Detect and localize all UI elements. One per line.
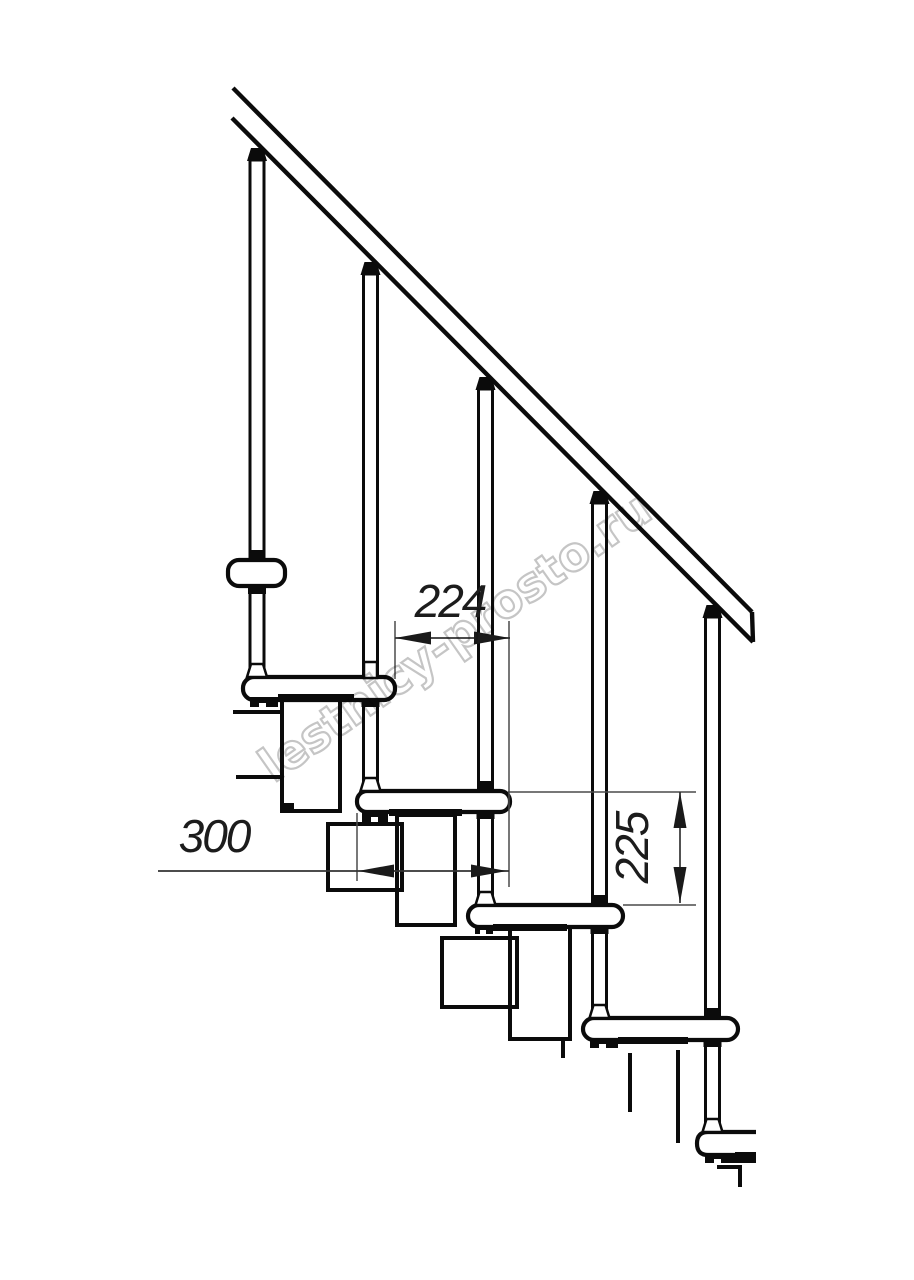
base-collar: [590, 1005, 610, 1018]
tread-shadow: [618, 1037, 688, 1044]
arrow-down: [674, 867, 687, 903]
module-joint-tick: [281, 803, 294, 812]
handrail-end-cut: [752, 612, 753, 642]
base-collar: [361, 778, 381, 791]
arrow-left: [358, 865, 394, 878]
tread-4: [583, 1018, 738, 1040]
tread-shadows: [278, 694, 756, 1163]
base-collar: [247, 664, 267, 677]
bracket-notch: [480, 930, 486, 934]
baluster-5: [706, 617, 720, 1132]
tread-2: [357, 791, 510, 812]
staircase-drawing: 224 300 225 lestnicy-prosto.ru: [0, 0, 914, 1280]
dim-label-225: 225: [606, 810, 658, 884]
tread-5-partial: [697, 1132, 756, 1155]
pass-nub: [477, 813, 495, 819]
tread-top-partial: [228, 560, 285, 586]
arrow-up: [674, 792, 687, 828]
bracket-notch: [599, 1044, 606, 1048]
module-block-offset: [442, 938, 517, 1007]
pass-nub: [591, 928, 609, 934]
pass-collar: [248, 550, 266, 560]
bracket-notch: [714, 1159, 721, 1163]
pass-nub: [248, 588, 266, 594]
base-collar: [476, 892, 496, 905]
tread-3: [468, 905, 623, 927]
pass-collar: [704, 1008, 722, 1018]
module-block-offset: [328, 824, 402, 890]
base-collar: [703, 1119, 723, 1132]
baluster-4: [593, 503, 607, 1018]
baluster-1: [250, 160, 264, 677]
tread-shadow: [735, 1152, 756, 1163]
pass-collar: [477, 781, 495, 791]
drawing-canvas: 224 300 225 lestnicy-prosto.ru: [0, 0, 914, 1280]
dim-label-300: 300: [179, 810, 252, 862]
bracket-notch: [259, 703, 266, 707]
module-block: [397, 815, 455, 925]
pass-nub: [704, 1041, 722, 1047]
tread-shadow: [493, 924, 567, 931]
module-step-cut: [717, 1167, 740, 1187]
tread-shadow: [389, 809, 462, 816]
bracket-notch: [371, 817, 378, 822]
pass-collar: [591, 895, 609, 905]
